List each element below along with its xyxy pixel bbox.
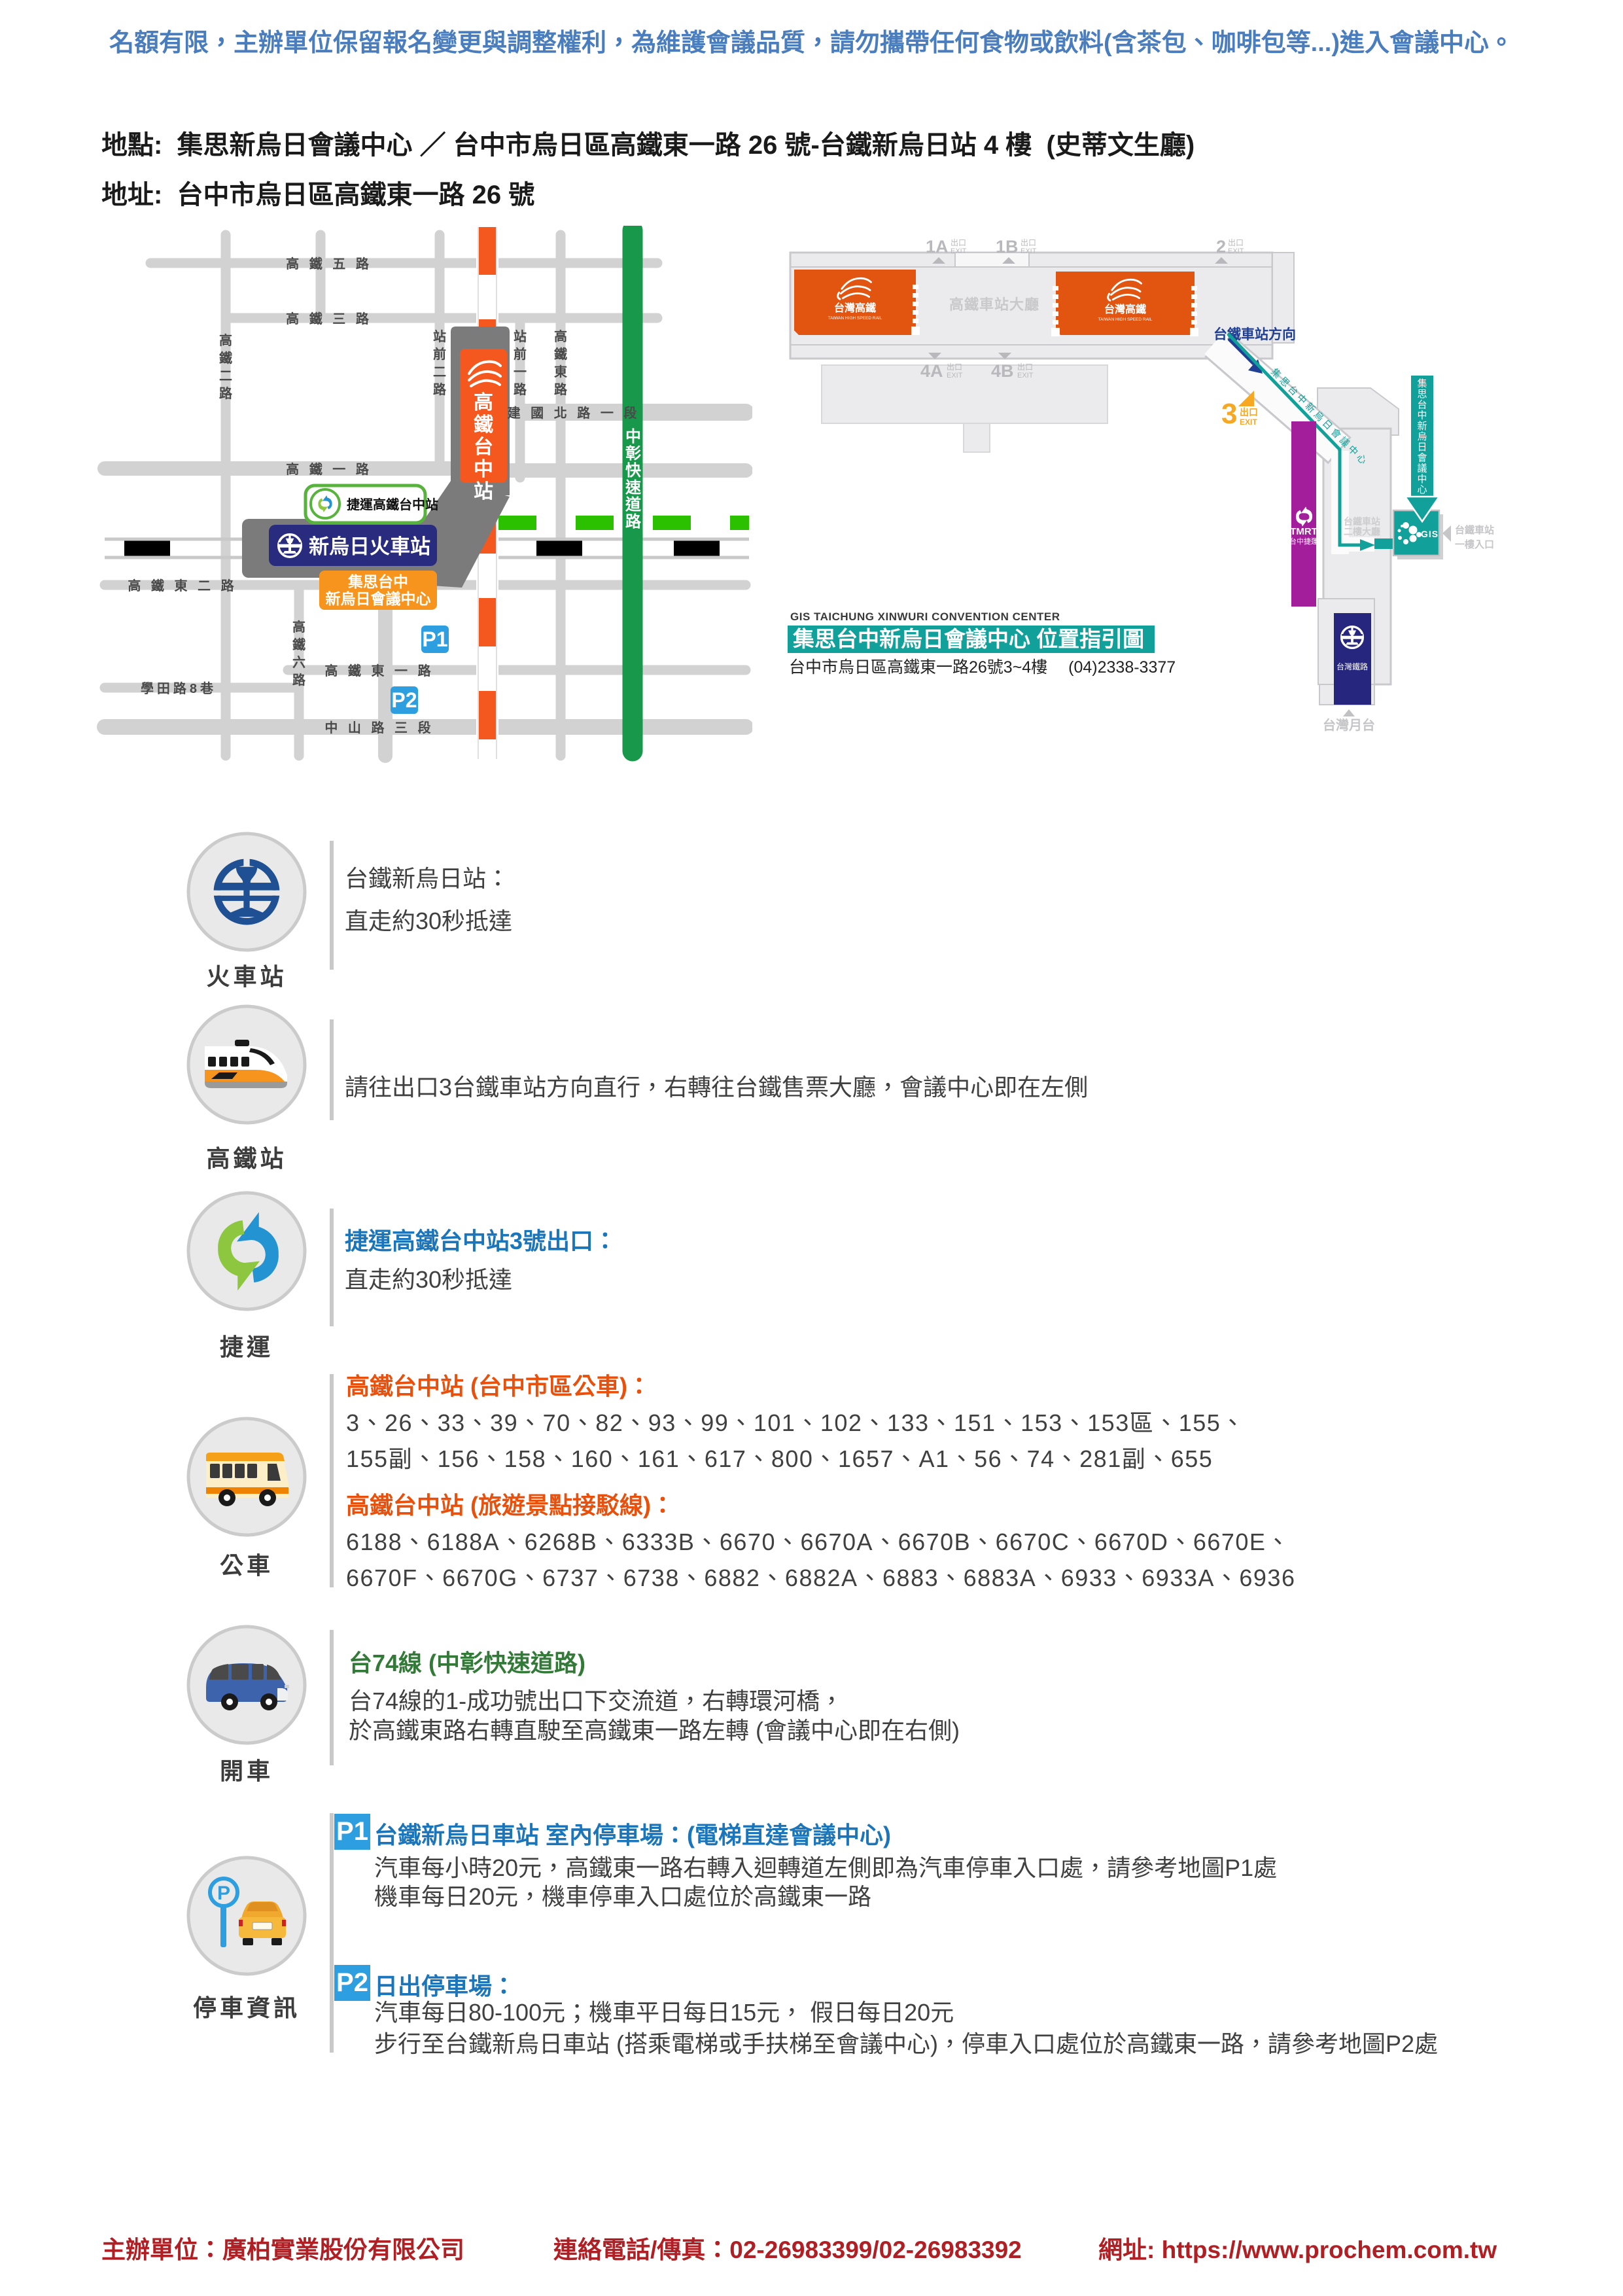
svg-text:出口: 出口 — [1021, 238, 1036, 247]
svg-text:建 國 北 路 一 段: 建 國 北 路 一 段 — [508, 405, 640, 421]
svg-text:高 鐵 三 路: 高 鐵 三 路 — [286, 311, 372, 327]
svg-text:4A: 4A — [920, 361, 943, 381]
svg-text:高 鐵 東 一 路: 高 鐵 東 一 路 — [324, 663, 434, 679]
svg-text:台鐵車站二樓大廳: 台鐵車站二樓大廳 — [1344, 516, 1380, 537]
svg-text:EXIT: EXIT — [1021, 247, 1037, 255]
svg-text:台灣鐵路: 台灣鐵路 — [1336, 662, 1368, 671]
svg-text:EXIT: EXIT — [1017, 372, 1034, 380]
svg-text:出口: 出口 — [951, 238, 966, 247]
svg-text:台鐵車站方向: 台鐵車站方向 — [1213, 327, 1296, 342]
svg-text:1B: 1B — [996, 237, 1019, 256]
svg-text:新烏日火車站: 新烏日火車站 — [309, 535, 430, 558]
svg-text:TMRT: TMRT — [1290, 526, 1318, 537]
svg-text:出口: 出口 — [947, 362, 962, 372]
svg-text:集思台中新烏日會議中心: 集思台中新烏日會議中心 — [1417, 378, 1427, 495]
svg-text:高鐵台中站: 高鐵台中站 — [474, 392, 493, 503]
svg-text:出口: 出口 — [1240, 407, 1258, 417]
svg-text:GIS: GIS — [1421, 529, 1439, 539]
svg-text:3: 3 — [1221, 398, 1237, 430]
svg-text:新烏日會議中心: 新烏日會議中心 — [326, 590, 431, 607]
svg-text:學田路8巷: 學田路8巷 — [141, 680, 217, 696]
svg-text:P: P — [217, 1882, 230, 1904]
svg-text:捷運高鐵台中站: 捷運高鐵台中站 — [347, 497, 438, 512]
svg-text:集思台中: 集思台中 — [347, 573, 408, 590]
svg-text:EXIT: EXIT — [951, 247, 967, 255]
svg-text:P1: P1 — [422, 627, 447, 651]
svg-text:中彰快速道路: 中彰快速道路 — [625, 428, 642, 531]
svg-text:出口: 出口 — [1017, 362, 1033, 372]
svg-text:出口: 出口 — [1228, 238, 1244, 247]
svg-text:台鐵車站一樓入口: 台鐵車站一樓入口 — [1455, 524, 1494, 550]
svg-text:高 鐵 五 路: 高 鐵 五 路 — [286, 256, 372, 272]
svg-text:高 鐵 東 二 路: 高 鐵 東 二 路 — [128, 578, 237, 593]
svg-text:EXIT: EXIT — [1228, 247, 1244, 255]
svg-text:EXIT: EXIT — [1240, 417, 1257, 427]
svg-text:台灣月台: 台灣月台 — [1323, 717, 1375, 733]
svg-text:高 鐵 一 路: 高 鐵 一 路 — [286, 461, 372, 477]
svg-text:2: 2 — [1216, 237, 1226, 256]
svg-text:台中捷運: 台中捷運 — [1289, 537, 1318, 546]
svg-text:4B: 4B — [991, 361, 1014, 381]
svg-text:P2: P2 — [391, 688, 417, 712]
svg-text:高鐵車站大廳: 高鐵車站大廳 — [949, 296, 1039, 313]
svg-text:台中市烏日區高鐵東一路26號3~4樓 (04)2338-3: 台中市烏日區高鐵東一路26號3~4樓 (04)2338-3377 — [789, 658, 1176, 677]
svg-text:EXIT: EXIT — [947, 372, 963, 380]
svg-text:1A: 1A — [926, 237, 949, 256]
svg-text:集思台中新烏日會議中心 位置指引圖: 集思台中新烏日會議中心 位置指引圖 — [793, 627, 1144, 651]
svg-text:中 山 路 三 段: 中 山 路 三 段 — [324, 720, 434, 735]
svg-text:GIS TAICHUNG XINWURI CONVENTIO: GIS TAICHUNG XINWURI CONVENTION CENTER — [790, 610, 1060, 623]
